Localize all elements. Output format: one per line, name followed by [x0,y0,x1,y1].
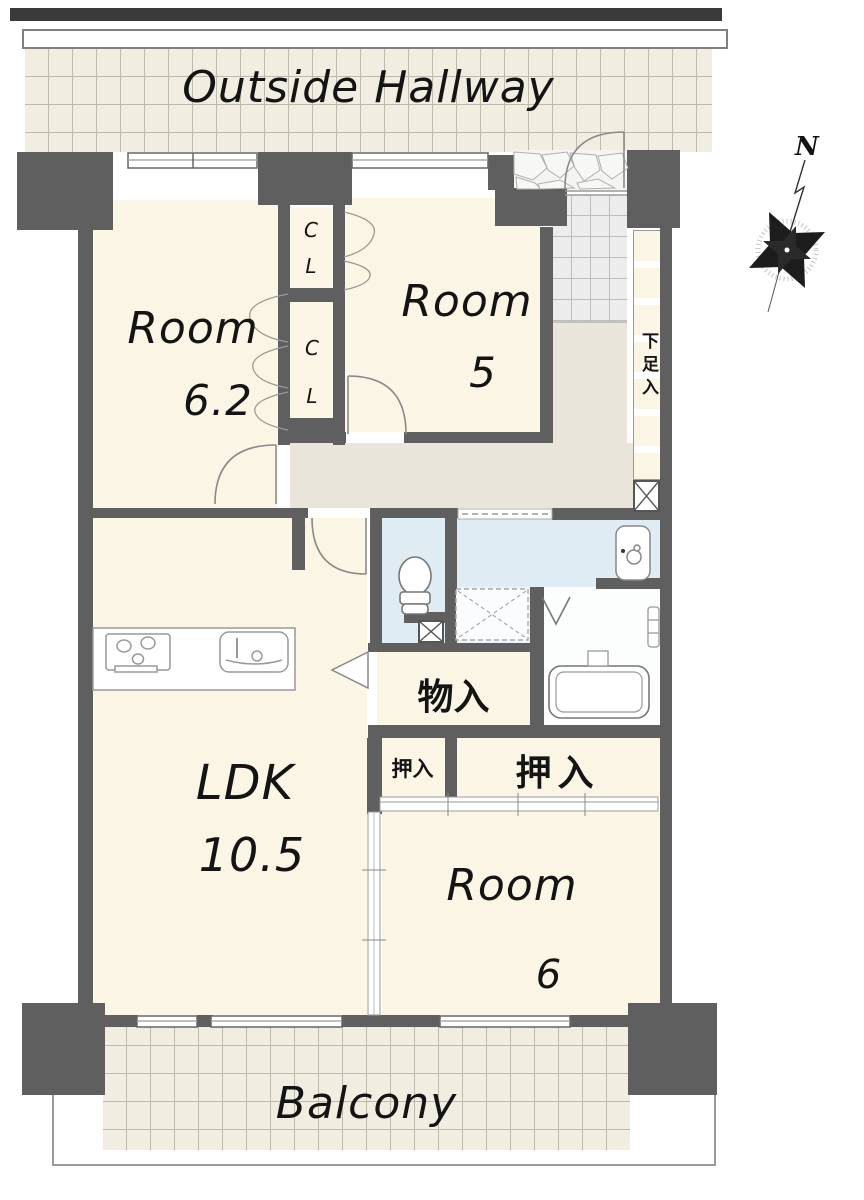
shoe-cabinet-label: 下足入 [636,306,661,426]
wall [540,227,553,443]
wall [627,150,680,228]
wall [530,587,544,732]
compass-rose [749,160,825,312]
wall [370,508,458,518]
room6-name-label: Room [422,860,602,911]
ldk-size-label: 10.5 [152,828,352,882]
wall [445,518,457,645]
wall [368,725,672,738]
wall [78,508,308,518]
wall [368,643,540,652]
window-room5 [352,153,488,168]
wall [197,1015,213,1027]
toilet-floor [382,518,445,645]
wall [278,288,345,302]
balcony-label: Balcony [103,1078,630,1129]
room5-size-label: 5 [393,348,573,397]
wall [292,518,305,570]
wall [17,152,113,230]
washroom-floor [457,518,660,587]
hallway-lower [290,443,660,508]
wall [488,155,514,190]
wall [333,205,345,445]
room62-window-bay [93,168,278,204]
wall [78,1015,138,1027]
window-room62 [128,153,257,168]
room5-name-label: Room [377,276,557,327]
wall-right-exterior [660,190,672,1027]
laundry-floor [457,587,530,643]
floor-plan: Outside Hallway N Room 6.2 Room 5 CL CL … [0,0,864,1200]
wall [495,188,567,226]
wall [258,152,352,205]
wall [552,508,672,520]
room62-doorway [278,446,290,504]
top-edge-bar [10,8,722,21]
room62-size-label: 6.2 [128,376,308,425]
wall [596,578,672,589]
ldk-name-label: LDK [145,755,345,811]
closet-top-label: CL [294,212,329,284]
wall [370,518,382,645]
room6-size-label: 6 [459,952,639,998]
wall [278,432,346,443]
outside-hallway-curb [22,29,728,49]
futon-closet-large-label: 押入 [457,744,658,796]
wall [404,432,553,443]
outside-hallway-label: Outside Hallway [25,62,712,113]
wall [342,1015,440,1027]
room62-name-label: Room [103,303,283,354]
wall [404,612,457,623]
compass-north-label: N [795,132,819,162]
wall [445,738,457,798]
futon-closet-small-label: 押入 [380,753,445,783]
closet-bottom-label: CL [295,324,330,420]
entrance-porch [512,150,627,190]
bathroom-floor [544,589,660,725]
wall-left-exterior [78,152,93,1026]
room62-floor [93,200,278,508]
storage-room-label: 物入 [377,668,530,720]
wall [570,1015,672,1027]
